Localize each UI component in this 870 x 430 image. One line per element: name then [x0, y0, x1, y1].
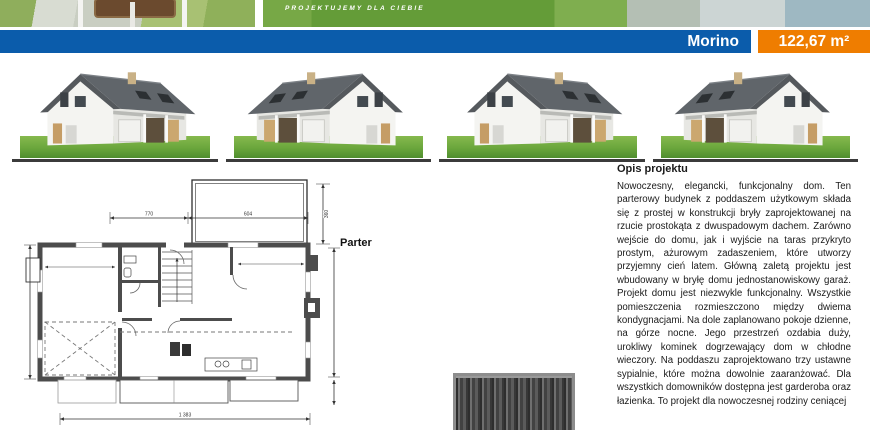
floor-plan-drawing: 770 604 360 Parter — [20, 172, 385, 430]
ground-line — [653, 159, 859, 162]
project-description: Opis projektu Nowoczesny, elegancki, fun… — [617, 163, 851, 408]
description-heading: Opis projektu — [617, 163, 851, 175]
floor-plan: 770 604 360 Parter — [20, 172, 385, 430]
area-badge: 122,67 m² — [758, 30, 870, 53]
project-title: Morino — [687, 33, 739, 51]
photo-divider — [255, 0, 263, 27]
description-body: Nowoczesny, elegancki, funkcjonalny dom.… — [617, 180, 851, 408]
house-elevation-1 — [12, 66, 218, 162]
title-bar-gap — [751, 30, 758, 53]
garage-door-photo — [453, 373, 575, 430]
house-elevation-3 — [439, 66, 645, 162]
brand-tagline: PROJEKTUJEMY DLA CIEBIE — [285, 5, 425, 12]
house-illustration — [671, 65, 839, 149]
house-illustration — [458, 65, 626, 149]
title-bar: Morino 122,67 m² — [0, 30, 870, 53]
dim-bottom: 1 383 — [179, 413, 192, 419]
house-elevation-4 — [653, 66, 859, 162]
house-elevation-2 — [226, 66, 432, 162]
elevations-row — [0, 66, 870, 162]
project-title-bar: Morino — [0, 30, 751, 53]
photo-garden: PROJEKTUJEMY DLA CIEBIE — [263, 0, 870, 27]
ground-line — [12, 159, 218, 162]
header-photo-strip: PROJEKTUJEMY DLA CIEBIE — [0, 0, 870, 27]
house-illustration — [244, 65, 412, 149]
area-value: 122,67 m² — [779, 33, 850, 51]
ground-line — [226, 159, 432, 162]
house-illustration — [31, 65, 199, 149]
dim-top-right: 604 — [244, 212, 253, 218]
dim-top-left: 770 — [145, 212, 154, 218]
photo-terrace — [0, 0, 255, 27]
floor-label: Parter — [340, 237, 373, 249]
ground-line — [439, 159, 645, 162]
dim-canopy-side: 360 — [324, 210, 330, 219]
